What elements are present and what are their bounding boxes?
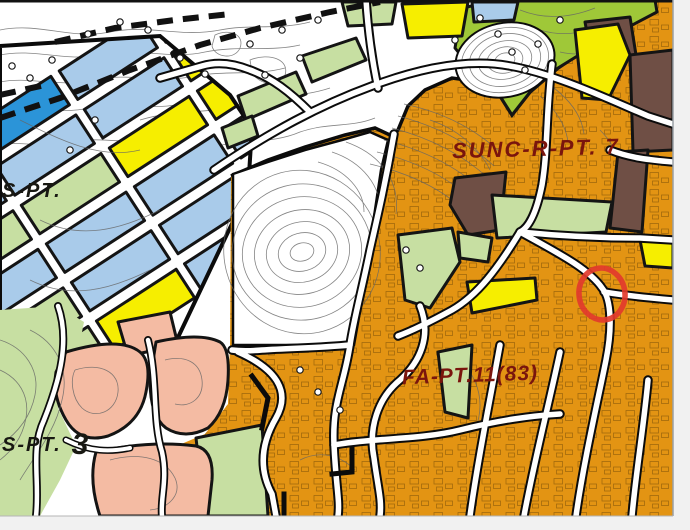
tree-icon [403,247,409,253]
zone-label-s3: S-PT. 3 [2,434,90,457]
tree-icon [297,55,303,61]
zone-label-s3-number: 3 [72,434,91,456]
tree-icon [49,57,55,63]
tree-icon [557,17,563,23]
tree-icon [9,63,15,69]
parcel-brown [630,50,673,152]
tree-icon [279,27,285,33]
tree-icon [535,41,541,47]
zone-label-fa: FA-PT.11(83) [402,362,539,391]
tree-icon [177,55,183,61]
tree-icon [247,41,253,47]
tree-icon [509,49,515,55]
tree-icon [495,31,501,37]
tree-icon [92,117,98,123]
tree-icon [145,27,151,33]
tree-icon [522,67,528,73]
parcel-salmon [93,444,212,516]
zone-label-s3-prefix: S-PT. [2,434,62,457]
zone-label-s-left: S-PT. [2,180,62,203]
zone-label-sunc: SUNC-R-PT. 7 [452,134,620,164]
tree-icon [262,72,268,78]
map-image[interactable]: SUNC-R-PT. 7 FA-PT.11(83) S-PT. S-PT. 3 [0,0,690,530]
parcel-yellow [402,2,468,38]
tree-icon [315,389,321,395]
tree-icon [67,147,73,153]
map-top-edge [0,0,673,3]
tree-icon [297,367,303,373]
zoning-map-canvas [0,0,690,530]
tree-icon [477,15,483,21]
tree-icon [27,75,33,81]
tree-icon [417,265,423,271]
parcel-green [458,232,492,262]
right-margin [673,0,690,530]
tree-icon [315,17,321,23]
bottom-margin [0,516,690,530]
tree-icon [85,31,91,37]
parcel-salmon [150,337,228,434]
tree-icon [452,37,458,43]
tree-icon [117,19,123,25]
tree-icon [337,407,343,413]
tree-icon [202,71,208,77]
